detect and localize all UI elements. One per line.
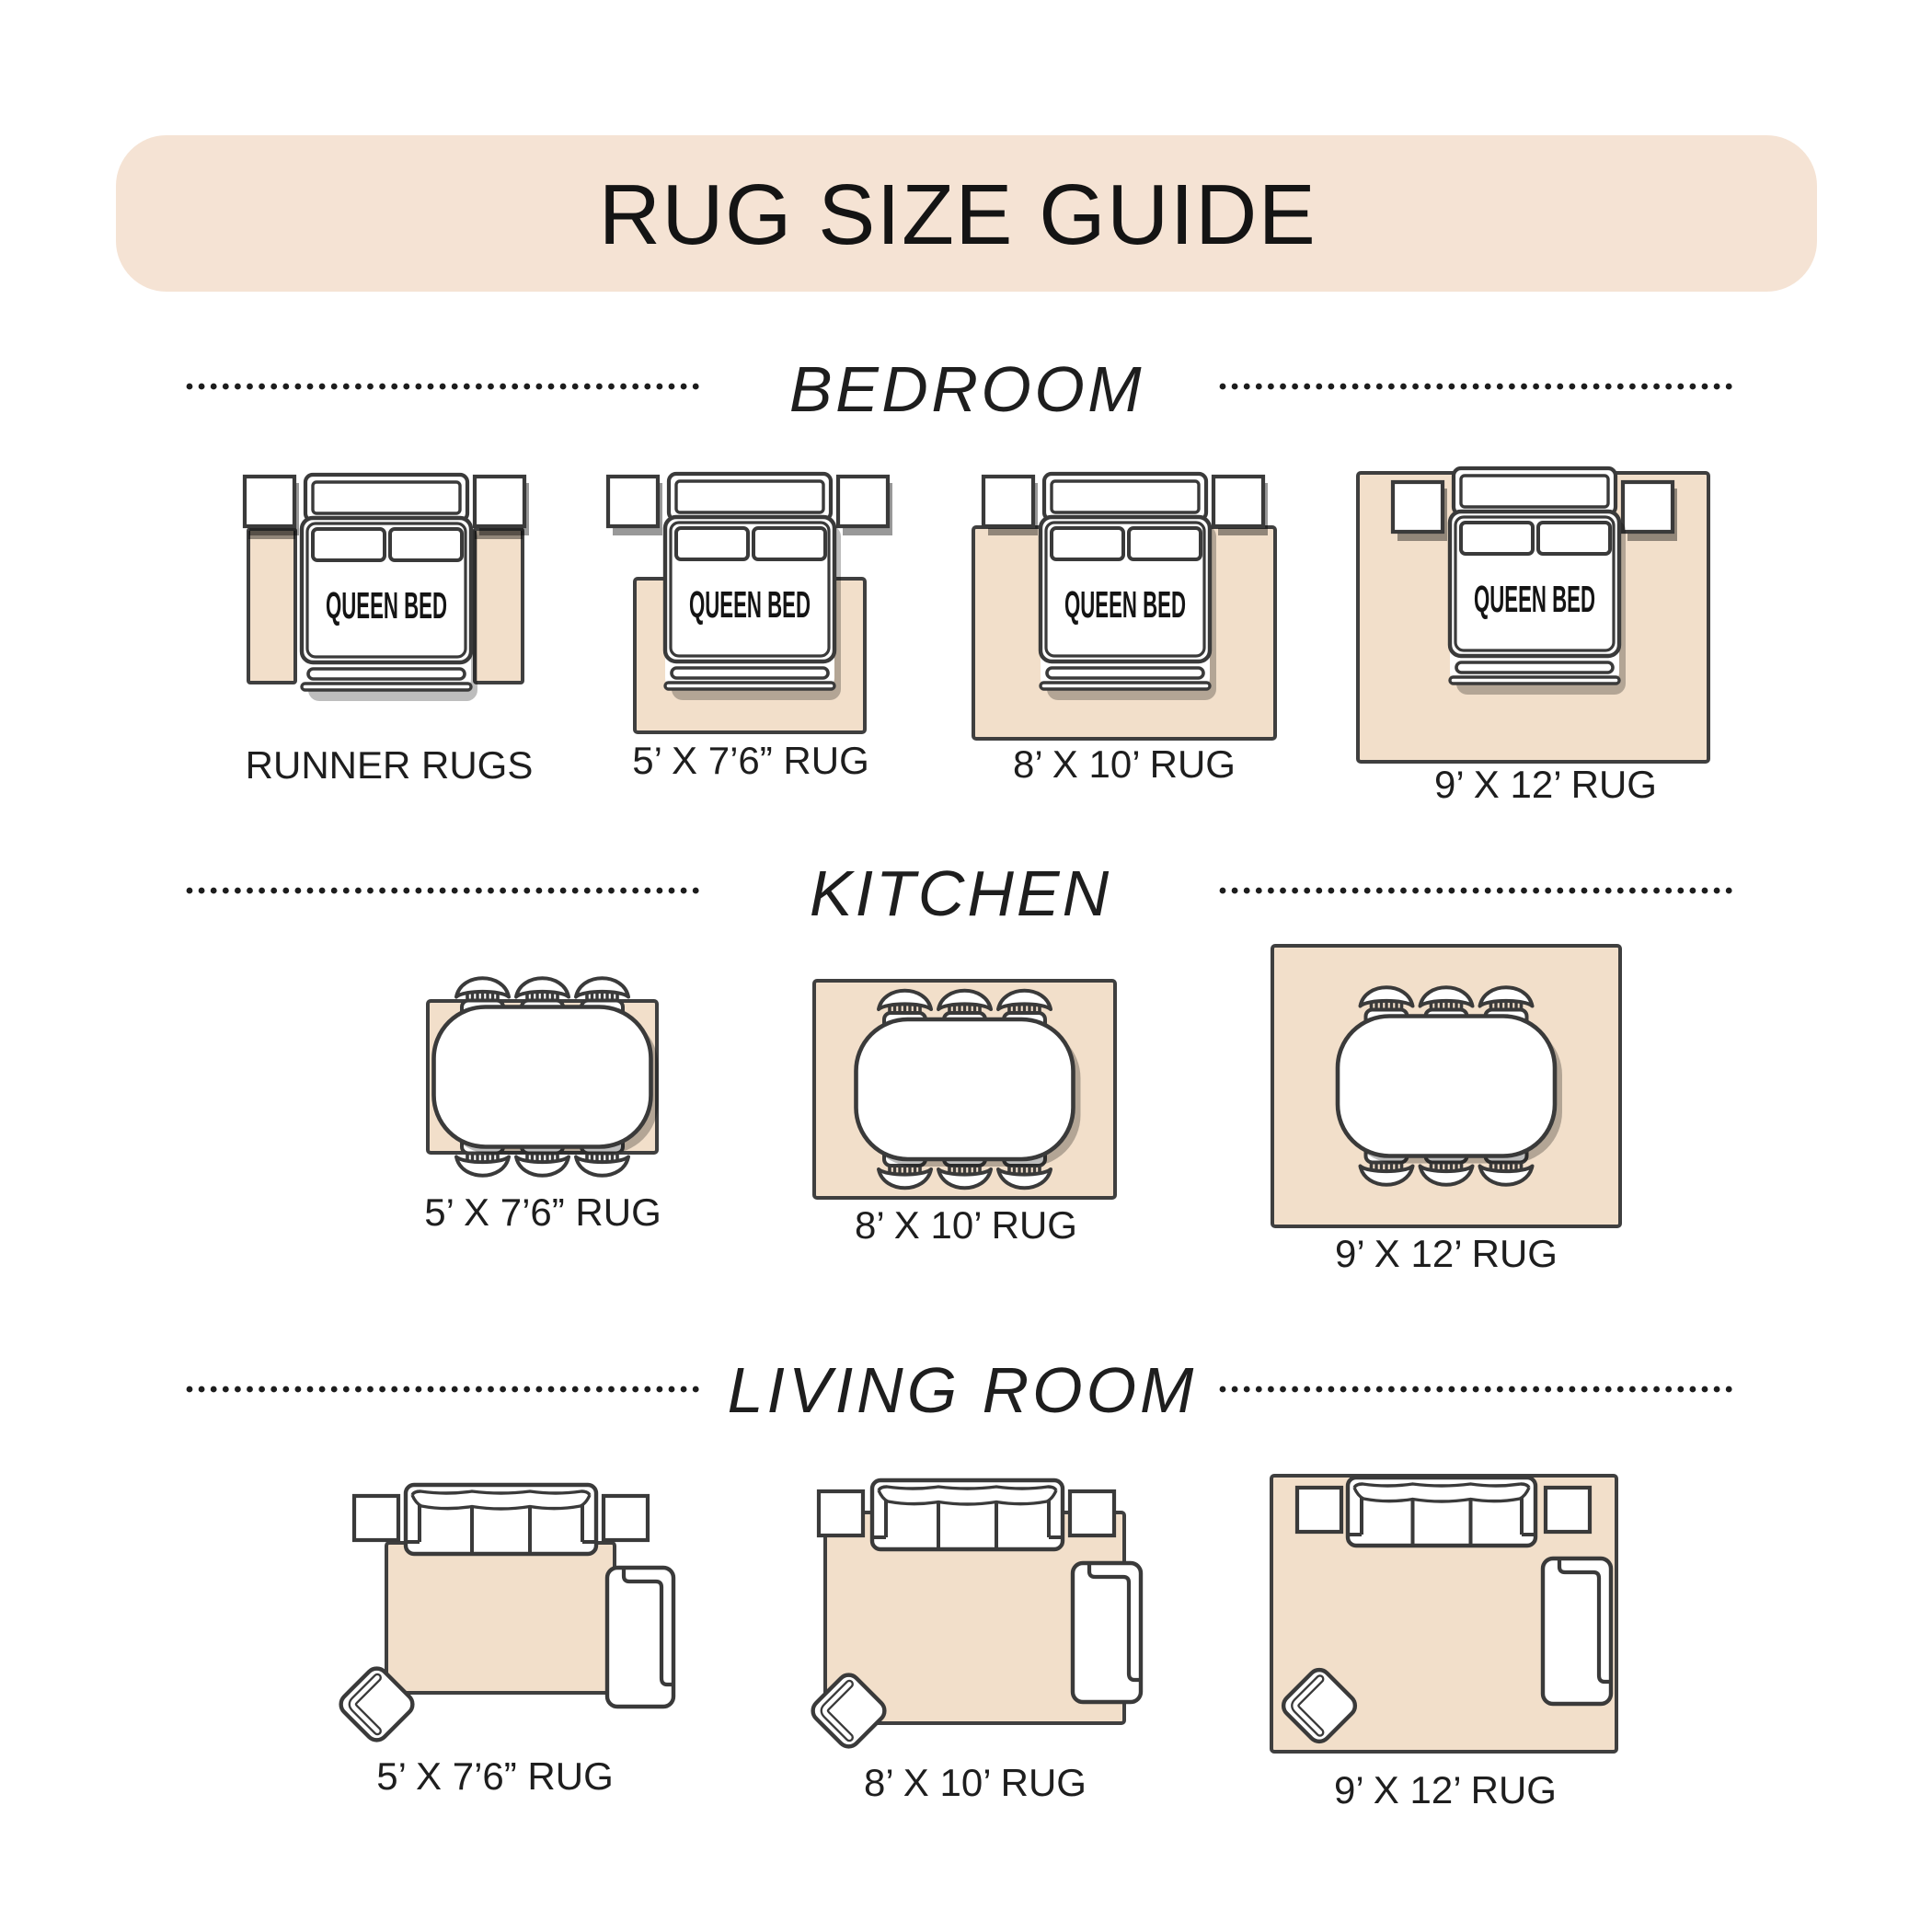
- svg-text:QUEEN BED: QUEEN BED: [326, 584, 447, 627]
- svg-text:5’ X 7’6” RUG: 5’ X 7’6” RUG: [424, 1190, 661, 1234]
- svg-text:KITCHEN: KITCHEN: [810, 857, 1111, 929]
- svg-text:5’ X 7’6” RUG: 5’ X 7’6” RUG: [632, 739, 869, 782]
- svg-text:8’ X 10’ RUG: 8’ X 10’ RUG: [1013, 742, 1236, 786]
- svg-text:8’ X 10’ RUG: 8’ X 10’ RUG: [855, 1203, 1077, 1247]
- svg-text:RUG SIZE GUIDE: RUG SIZE GUIDE: [599, 167, 1317, 262]
- svg-text:QUEEN BED: QUEEN BED: [689, 583, 811, 626]
- svg-text:9’ X 12’ RUG: 9’ X 12’ RUG: [1334, 1768, 1557, 1811]
- svg-text:QUEEN BED: QUEEN BED: [1064, 583, 1186, 626]
- svg-text:9’ X 12’ RUG: 9’ X 12’ RUG: [1335, 1232, 1558, 1275]
- svg-text:8’ X 10’ RUG: 8’ X 10’ RUG: [864, 1761, 1087, 1804]
- svg-text:QUEEN BED: QUEEN BED: [1474, 578, 1595, 620]
- svg-text:9’ X 12’ RUG: 9’ X 12’ RUG: [1434, 763, 1657, 806]
- svg-text:BEDROOM: BEDROOM: [789, 353, 1144, 425]
- svg-text:5’ X 7’6” RUG: 5’ X 7’6” RUG: [376, 1754, 614, 1798]
- svg-text:RUNNER RUGS: RUNNER RUGS: [246, 743, 534, 787]
- svg-text:LIVING ROOM: LIVING ROOM: [728, 1354, 1198, 1426]
